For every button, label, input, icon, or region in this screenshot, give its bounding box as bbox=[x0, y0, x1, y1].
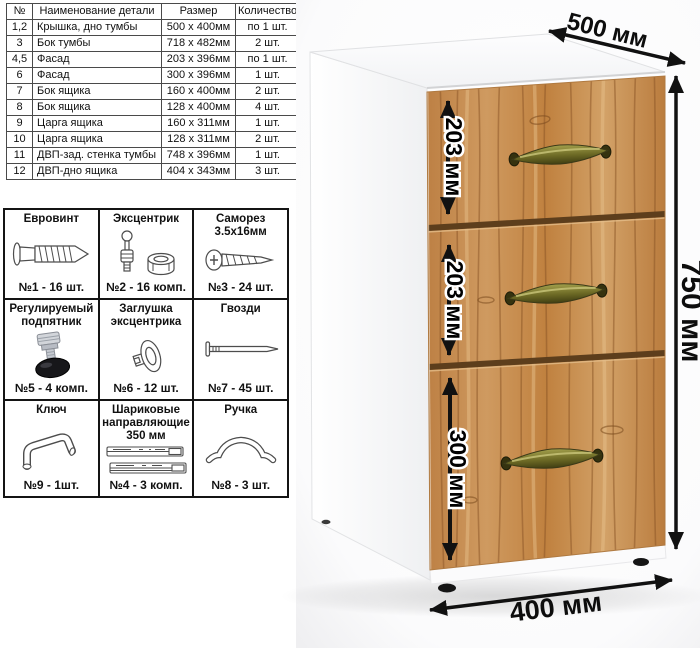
cell-part-name: Бок ящика bbox=[33, 84, 162, 100]
parts-table: № Наименование детали Размер Количество … bbox=[6, 3, 300, 180]
hardware-item-handle: Ручка №8 - 3 шт. bbox=[194, 401, 287, 496]
drawer-handle-3 bbox=[501, 446, 604, 470]
drawer-handle-2 bbox=[505, 281, 608, 305]
cell-part-num: 10 bbox=[7, 132, 33, 148]
self-tapping-screw-icon bbox=[196, 239, 285, 281]
cabinet-base bbox=[430, 545, 666, 584]
hardware-item-title: Ключ bbox=[36, 404, 66, 417]
table-row: 12 ДВП-дно ящика 404 х 343мм 3 шт. bbox=[7, 164, 300, 180]
cell-part-size: 160 х 400мм bbox=[162, 84, 236, 100]
cell-part-name: Бок тумбы bbox=[33, 36, 162, 52]
cell-part-size: 300 х 396мм bbox=[162, 68, 236, 84]
hardware-item-title: Евровинт bbox=[24, 213, 80, 226]
cell-part-num: 3 bbox=[7, 36, 33, 52]
ball-bearing-slides-icon bbox=[102, 443, 191, 479]
cell-part-qty: 2 шт. bbox=[236, 132, 300, 148]
hardware-item-title: Гвозди bbox=[221, 303, 261, 316]
cell-part-size: 748 х 396мм bbox=[162, 148, 236, 164]
cabinet-top bbox=[310, 34, 665, 88]
cell-part-qty: 1 шт. bbox=[236, 116, 300, 132]
cell-part-qty: 1 шт. bbox=[236, 148, 300, 164]
cabinet-foot-front bbox=[438, 584, 456, 593]
hardware-item-title: Ручка bbox=[224, 404, 257, 417]
width-arrow bbox=[430, 580, 672, 610]
cell-part-size: 404 х 343мм bbox=[162, 164, 236, 180]
hardware-item-count: №9 - 1шт. bbox=[24, 479, 80, 492]
dimension-arrows bbox=[430, 31, 685, 610]
hardware-item-cam-cap: Заглушка эксцентрика №6 - 12 шт. bbox=[100, 300, 193, 399]
cabinet-side-panel bbox=[310, 52, 430, 580]
cabinet-body bbox=[310, 34, 666, 593]
cell-part-name: ДВП-зад. стенка тумбы bbox=[33, 148, 162, 164]
cell-part-num: 12 bbox=[7, 164, 33, 180]
cell-part-qty: 2 шт. bbox=[236, 36, 300, 52]
table-row: 7 Бок ящика 160 х 400мм 2 шт. bbox=[7, 84, 300, 100]
cell-part-size: 160 х 311мм bbox=[162, 116, 236, 132]
cell-part-num: 1,2 bbox=[7, 20, 33, 36]
cell-part-name: Крышка, дно тумбы bbox=[33, 20, 162, 36]
hardware-item-count: №5 - 4 комп. bbox=[15, 382, 88, 395]
cell-part-name: Фасад bbox=[33, 68, 162, 84]
cell-part-size: 500 х 400мм bbox=[162, 20, 236, 36]
hardware-item-adjustable-foot: Регулируемый подпятник №5 - 4 комп. bbox=[5, 300, 98, 399]
hardware-grid: Евровинт №1 - 16 шт. Эксцентрик bbox=[3, 208, 289, 498]
hardware-item-slides: Шариковые направляющие 350 мм №4 - 3 ком… bbox=[100, 401, 193, 496]
drawer-fronts bbox=[427, 60, 665, 580]
cabinet-foot-right bbox=[633, 558, 649, 566]
cell-part-num: 4,5 bbox=[7, 52, 33, 68]
hardware-item-count: №2 - 16 комп. bbox=[106, 281, 186, 294]
depth-arrow bbox=[549, 31, 685, 63]
cell-part-qty: по 1 шт. bbox=[236, 52, 300, 68]
nails-icon bbox=[196, 316, 285, 382]
cell-part-num: 7 bbox=[7, 84, 33, 100]
table-row: 3 Бок тумбы 718 х 482мм 2 шт. bbox=[7, 36, 300, 52]
cell-part-size: 718 х 482мм bbox=[162, 36, 236, 52]
drawer-gap-1 bbox=[427, 211, 665, 231]
hardware-item-cam-lock: Эксцентрик №2 - 16 комп. bbox=[100, 210, 193, 298]
cell-part-qty: 2 шт. bbox=[236, 84, 300, 100]
height-dimension-label: 750 мм bbox=[675, 260, 700, 363]
adjustable-foot-icon bbox=[7, 329, 96, 382]
cell-part-name: ДВП-дно ящика bbox=[33, 164, 162, 180]
hardware-item-euro-screw: Евровинт №1 - 16 шт. bbox=[5, 210, 98, 298]
drawer-handle-1 bbox=[509, 142, 612, 166]
hardware-item-nails: Гвозди №7 - 45 шт. bbox=[194, 300, 287, 399]
cam-lock-icon bbox=[102, 226, 191, 281]
hardware-item-key: Ключ №9 - 1шт. bbox=[5, 401, 98, 496]
hardware-item-count: №4 - 3 комп. bbox=[109, 479, 182, 492]
table-header-row: № Наименование детали Размер Количество bbox=[7, 4, 300, 20]
table-row: 8 Бок ящика 128 х 400мм 4 шт. bbox=[7, 100, 300, 116]
table-row: 4,5 Фасад 203 х 396мм по 1 шт. bbox=[7, 52, 300, 68]
hardware-item-count: №8 - 3 шт. bbox=[211, 479, 270, 492]
cell-part-name: Царга ящика bbox=[33, 132, 162, 148]
hardware-item-count: №6 - 12 шт. bbox=[113, 382, 179, 395]
hardware-item-title: Эксцентрик bbox=[113, 213, 179, 226]
table-row: 10 Царга ящика 128 х 311мм 2 шт. bbox=[7, 132, 300, 148]
width-dimension-label: 400 мм bbox=[508, 587, 603, 628]
wood-grain bbox=[440, 60, 656, 580]
cell-part-name: Царга ящика bbox=[33, 116, 162, 132]
hardware-item-title: Регулируемый подпятник bbox=[7, 303, 96, 329]
drawer1-height-label: 203 мм bbox=[441, 118, 467, 197]
photo-backdrop bbox=[296, 0, 700, 648]
table-row: 6 Фасад 300 х 396мм 1 шт. bbox=[7, 68, 300, 84]
euro-screw-icon bbox=[7, 226, 96, 281]
drawer3-height-label: 300 мм bbox=[445, 430, 471, 509]
cell-part-name: Бок ящика bbox=[33, 100, 162, 116]
cabinet-shadow bbox=[280, 574, 700, 618]
col-header-size: Размер bbox=[162, 4, 236, 20]
hardware-item-title: Шариковые направляющие 350 мм bbox=[102, 404, 191, 443]
hex-key-icon bbox=[7, 417, 96, 479]
cabinet-top-edge bbox=[427, 72, 665, 88]
assembly-instruction-page: № Наименование детали Размер Количество … bbox=[0, 0, 700, 648]
hardware-item-title: Заглушка эксцентрика bbox=[102, 303, 191, 329]
cell-part-qty: по 1 шт. bbox=[236, 20, 300, 36]
hardware-item-count: №3 - 24 шт. bbox=[208, 281, 274, 294]
cell-part-num: 11 bbox=[7, 148, 33, 164]
hardware-item-count: №1 - 16 шт. bbox=[19, 281, 85, 294]
cell-part-qty: 3 шт. bbox=[236, 164, 300, 180]
cabinet-foot-left bbox=[322, 520, 331, 524]
cell-part-size: 128 х 400мм bbox=[162, 100, 236, 116]
cell-part-num: 8 bbox=[7, 100, 33, 116]
cell-part-qty: 1 шт. bbox=[236, 68, 300, 84]
table-row: 9 Царга ящика 160 х 311мм 1 шт. bbox=[7, 116, 300, 132]
cell-part-size: 128 х 311мм bbox=[162, 132, 236, 148]
drawer-gap-2 bbox=[428, 350, 665, 370]
handle-icon bbox=[196, 417, 285, 479]
cell-part-name: Фасад bbox=[33, 52, 162, 68]
cam-cap-icon bbox=[102, 329, 191, 382]
hardware-item-screw: Саморез 3.5х16мм №3 - 24 шт. bbox=[194, 210, 287, 298]
depth-dimension-label: 500 мм bbox=[564, 8, 650, 54]
cell-part-size: 203 х 396мм bbox=[162, 52, 236, 68]
col-header-name: Наименование детали bbox=[33, 4, 162, 20]
drawer2-height-label: 203 мм bbox=[442, 261, 468, 340]
col-header-num: № bbox=[7, 4, 33, 20]
cell-part-num: 9 bbox=[7, 116, 33, 132]
table-row: 1,2 Крышка, дно тумбы 500 х 400мм по 1 ш… bbox=[7, 20, 300, 36]
hardware-item-count: №7 - 45 шт. bbox=[208, 382, 274, 395]
col-header-qty: Количество bbox=[236, 4, 300, 20]
cell-part-num: 6 bbox=[7, 68, 33, 84]
hardware-item-title: Саморез 3.5х16мм bbox=[196, 213, 285, 239]
table-row: 11 ДВП-зад. стенка тумбы 748 х 396мм 1 ш… bbox=[7, 148, 300, 164]
cell-part-qty: 4 шт. bbox=[236, 100, 300, 116]
